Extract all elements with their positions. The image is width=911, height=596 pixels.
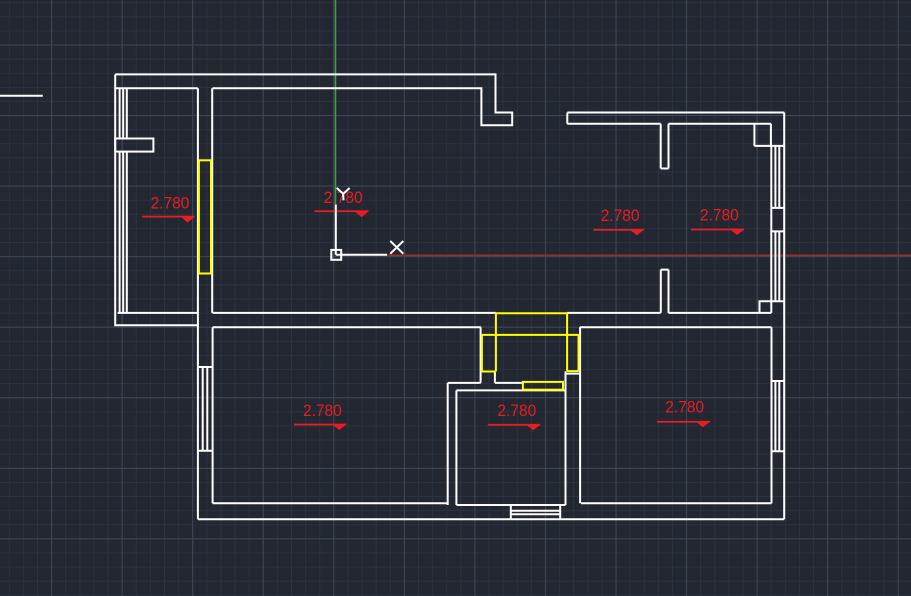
svg-text:2.780: 2.780 [665,398,704,417]
svg-text:2.780: 2.780 [700,206,739,225]
svg-text:2.780: 2.780 [601,206,640,225]
svg-text:2.780: 2.780 [497,401,536,420]
svg-text:2.780: 2.780 [151,194,190,213]
svg-text:2.780: 2.780 [303,401,342,420]
